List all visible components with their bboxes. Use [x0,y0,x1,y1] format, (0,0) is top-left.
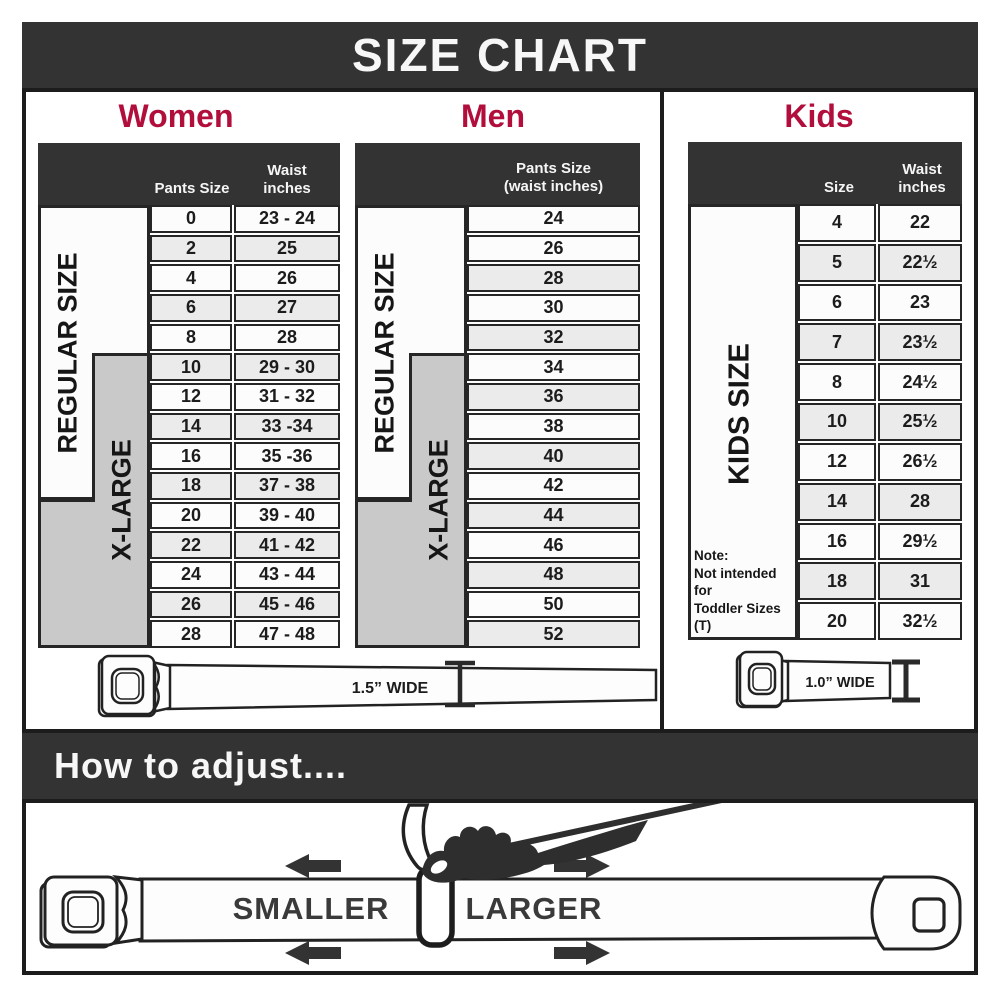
size-cell: 26 [467,235,640,263]
adult-belt-illustration: 1.5” WIDE [90,650,660,722]
table-row: 18 31 [798,562,962,600]
men-xlarge-label: X-LARGE [424,439,455,561]
belt-end-piece [872,877,960,949]
table-row: 48 [467,561,640,589]
waist-cell: 22 [878,204,962,242]
smaller-label: SMALLER [233,891,390,926]
waist-cell: 26½ [878,443,962,481]
kids-note: Note: Not intended for Toddler Sizes (T) [694,547,798,635]
waist-cell: 43 - 44 [234,561,340,589]
waist-cell: 28 [234,324,340,352]
table-row: 18 37 - 38 [150,472,340,500]
strap-bracket [116,877,142,943]
women-size-table: Pants Size Waist inches REGULAR SIZE X-L… [38,143,340,648]
men-label-column: REGULAR SIZE X-LARGE [355,205,467,648]
size-cell: 28 [150,620,232,648]
size-cell: 6 [150,294,232,322]
table-row: 14 28 [798,483,962,521]
men-table-header: Pants Size (waist inches) [355,143,640,205]
waist-cell: 23 - 24 [234,205,340,233]
size-cell: 30 [467,294,640,322]
table-row: 20 32½ [798,602,962,640]
waist-cell: 32½ [878,602,962,640]
men-rows: 24 26 28 30 32 34 36 38 [467,205,640,648]
waist-cell: 31 - 32 [234,383,340,411]
table-row: 24 [467,205,640,233]
table-row: 22 41 - 42 [150,531,340,559]
kids-size-table: Size Waist inches KIDS SIZE Note: Not in… [688,142,962,640]
waist-cell: 31 [878,562,962,600]
table-row: 28 47 - 48 [150,620,340,648]
kids-table-header: Size Waist inches [688,142,962,204]
waist-cell: 33 -34 [234,413,340,441]
waist-cell: 39 - 40 [234,502,340,530]
kids-label-column: KIDS SIZE Note: Not intended for Toddler… [688,204,798,640]
size-cell: 38 [467,413,640,441]
kids-size-side-label: KIDS SIZE [724,343,757,485]
kids-rows: 4 22 5 22½ 6 23 7 23½ 8 24½ [798,204,962,640]
women-pants-size-header: Pants Size [150,180,234,198]
table-row: 32 [467,324,640,352]
table-row: 8 24½ [798,363,962,401]
table-row: 40 [467,442,640,470]
size-cell: 2 [150,235,232,263]
size-cell: 40 [467,442,640,470]
size-cell: 52 [467,620,640,648]
size-cell: 7 [798,323,876,361]
adjust-bar: How to adjust.... [22,733,978,799]
table-row: 46 [467,531,640,559]
table-row: 2 25 [150,235,340,263]
waist-cell: 22½ [878,244,962,282]
smaller-arrow-top [285,854,341,878]
table-row: 28 [467,264,640,292]
buckle-window-inner [68,897,98,927]
women-waist-header: Waist inches [234,162,340,198]
size-cell: 10 [798,403,876,441]
larger-arrow-bottom [554,941,610,965]
table-row: 10 29 - 30 [150,353,340,381]
size-cell: 32 [467,324,640,352]
waist-cell: 35 -36 [234,442,340,470]
table-row: 38 [467,413,640,441]
kids-size-header: Size [800,179,878,197]
table-row: 4 22 [798,204,962,242]
size-cell: 4 [150,264,232,292]
size-cell: 50 [467,591,640,619]
table-row: 20 39 - 40 [150,502,340,530]
table-row: 26 [467,235,640,263]
size-cell: 36 [467,383,640,411]
women-xlarge-label: X-LARGE [107,439,138,561]
table-row: 24 43 - 44 [150,561,340,589]
table-row: 4 26 [150,264,340,292]
size-cell: 46 [467,531,640,559]
men-pants-size-header: Pants Size (waist inches) [467,160,640,196]
page-title: SIZE CHART [352,28,648,82]
adjust-illustration-panel: SMALLER LARGER [22,799,978,975]
table-row: 36 [467,383,640,411]
women-table-header: Pants Size Waist inches [38,143,340,205]
table-row: 0 23 - 24 [150,205,340,233]
adjust-illustration: SMALLER LARGER [26,803,974,971]
size-cell: 0 [150,205,232,233]
size-cell: 24 [467,205,640,233]
table-row: 26 45 - 46 [150,591,340,619]
section-divider [660,92,664,729]
size-cell: 8 [150,324,232,352]
kids-waist-header: Waist inches [882,161,962,197]
size-cell: 16 [150,442,232,470]
size-cell: 28 [467,264,640,292]
smaller-arrow-bottom [285,941,341,965]
waist-cell: 45 - 46 [234,591,340,619]
women-regular-size-label: REGULAR SIZE [53,252,84,453]
table-row: 16 35 -36 [150,442,340,470]
table-row: 50 [467,591,640,619]
waist-cell: 28 [878,483,962,521]
kids-belt-illustration: 1.0” WIDE [720,648,930,714]
width-measure-icon [892,662,920,700]
size-cell: 12 [150,383,232,411]
waist-cell: 24½ [878,363,962,401]
size-cell: 4 [798,204,876,242]
table-row: 7 23½ [798,323,962,361]
table-row: 8 28 [150,324,340,352]
table-row: 30 [467,294,640,322]
table-row: 5 22½ [798,244,962,282]
size-cell: 14 [798,483,876,521]
men-regular-size-label: REGULAR SIZE [370,252,401,453]
main-panel: Women Men Kids Pants Size Waist inches R… [22,88,978,733]
size-cell: 20 [150,502,232,530]
adult-belt-width-label: 1.5” WIDE [352,680,429,697]
table-row: 42 [467,472,640,500]
size-cell: 24 [150,561,232,589]
size-cell: 42 [467,472,640,500]
table-row: 6 27 [150,294,340,322]
waist-cell: 37 - 38 [234,472,340,500]
title-bar: SIZE CHART [22,22,978,88]
table-row: 14 33 -34 [150,413,340,441]
waist-cell: 27 [234,294,340,322]
size-cell: 6 [798,284,876,322]
size-cell: 26 [150,591,232,619]
size-cell: 12 [798,443,876,481]
size-cell: 10 [150,353,232,381]
waist-cell: 29½ [878,523,962,561]
larger-label: LARGER [466,891,603,926]
waist-cell: 47 - 48 [234,620,340,648]
size-cell: 18 [150,472,232,500]
women-label-column: REGULAR SIZE X-LARGE [38,205,150,648]
table-row: 10 25½ [798,403,962,441]
size-cell: 5 [798,244,876,282]
size-cell: 44 [467,502,640,530]
table-row: 52 [467,620,640,648]
adjust-heading: How to adjust.... [22,745,347,787]
table-row: 16 29½ [798,523,962,561]
waist-cell: 41 - 42 [234,531,340,559]
size-cell: 48 [467,561,640,589]
waist-cell: 26 [234,264,340,292]
kids-heading: Kids [664,98,974,140]
men-heading: Men [326,98,660,140]
size-chart-infographic: SIZE CHART Women Men Kids Pants Size Wai… [0,0,1000,1000]
waist-cell: 23 [878,284,962,322]
women-rows: 0 23 - 24 2 25 4 26 6 27 8 28 [150,205,340,648]
waist-cell: 25½ [878,403,962,441]
table-row: 44 [467,502,640,530]
size-cell: 20 [798,602,876,640]
table-row: 34 [467,353,640,381]
size-cell: 22 [150,531,232,559]
kids-belt-width-label: 1.0” WIDE [805,675,875,691]
table-row: 12 26½ [798,443,962,481]
size-cell: 16 [798,523,876,561]
table-row: 6 23 [798,284,962,322]
women-heading: Women [26,98,326,140]
size-cell: 18 [798,562,876,600]
men-size-table: Pants Size (waist inches) REGULAR SIZE X… [355,143,640,648]
size-cell: 34 [467,353,640,381]
size-cell: 14 [150,413,232,441]
waist-cell: 29 - 30 [234,353,340,381]
waist-cell: 23½ [878,323,962,361]
table-row: 12 31 - 32 [150,383,340,411]
size-cell: 8 [798,363,876,401]
waist-cell: 25 [234,235,340,263]
hand-illustration [403,805,648,883]
